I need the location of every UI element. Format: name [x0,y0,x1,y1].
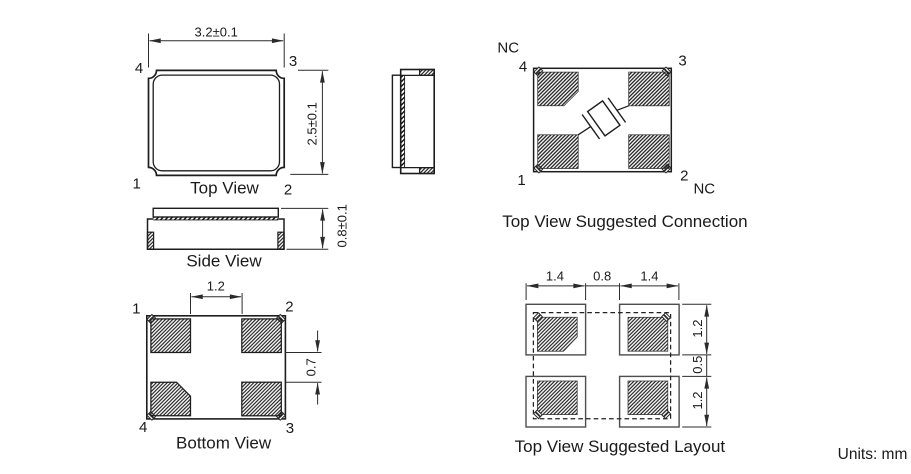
svg-text:3: 3 [678,52,686,69]
svg-text:1.4: 1.4 [546,268,564,283]
svg-text:1.4: 1.4 [640,268,658,283]
svg-text:2: 2 [285,299,293,316]
svg-text:2: 2 [680,167,688,184]
svg-text:Bottom View: Bottom View [176,434,272,453]
svg-text:3.2±0.1: 3.2±0.1 [195,25,238,40]
svg-text:0.8: 0.8 [593,268,611,283]
svg-text:Top View: Top View [190,178,259,197]
svg-text:0.7: 0.7 [303,358,318,376]
svg-text:NC: NC [693,181,715,198]
svg-text:Side View: Side View [186,252,262,271]
svg-text:2.5±0.1: 2.5±0.1 [304,102,319,145]
svg-text:1: 1 [133,176,141,193]
svg-text:NC: NC [497,39,519,56]
svg-text:Top View Suggested Connection: Top View Suggested Connection [502,212,747,231]
svg-text:3: 3 [289,53,297,70]
svg-text:4: 4 [519,59,527,76]
svg-text:1: 1 [132,301,140,318]
svg-text:1.2: 1.2 [690,320,705,338]
svg-text:1.2: 1.2 [207,279,225,294]
svg-text:3: 3 [286,420,294,437]
svg-text:1: 1 [517,172,525,189]
svg-text:Top View Suggested Layout: Top View Suggested Layout [515,437,726,456]
svg-text:0.8±0.1: 0.8±0.1 [334,204,349,247]
svg-text:4: 4 [139,419,147,436]
svg-text:4: 4 [135,60,143,77]
svg-text:1.2: 1.2 [690,391,705,409]
svg-text:Units: mm: Units: mm [838,446,908,463]
svg-text:0.5: 0.5 [690,356,705,374]
svg-text:2: 2 [284,182,292,199]
